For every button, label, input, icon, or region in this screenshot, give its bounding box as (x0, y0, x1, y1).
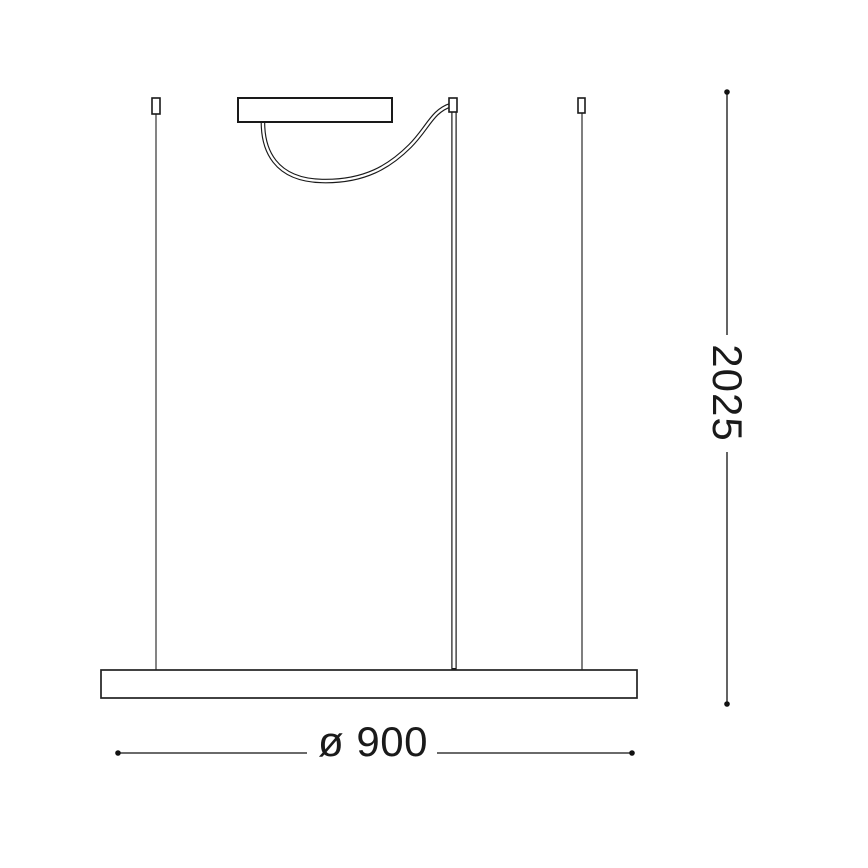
ceiling-canopy (238, 98, 392, 122)
drawing-canvas: ø 900 2025 (0, 0, 868, 868)
right-suspension-cap (578, 98, 585, 113)
left-suspension-cap (152, 98, 160, 114)
height-dim-top-dot (724, 89, 730, 95)
height-dim-bottom-dot (724, 701, 730, 707)
width-dim-left-dot (115, 750, 121, 756)
width-dimension-label: ø 900 (318, 721, 428, 763)
ring-profile-bar (101, 670, 637, 698)
middle-suspension-cap (449, 98, 457, 112)
width-dim-right-dot (629, 750, 635, 756)
height-dimension-label: 2025 (706, 344, 748, 441)
